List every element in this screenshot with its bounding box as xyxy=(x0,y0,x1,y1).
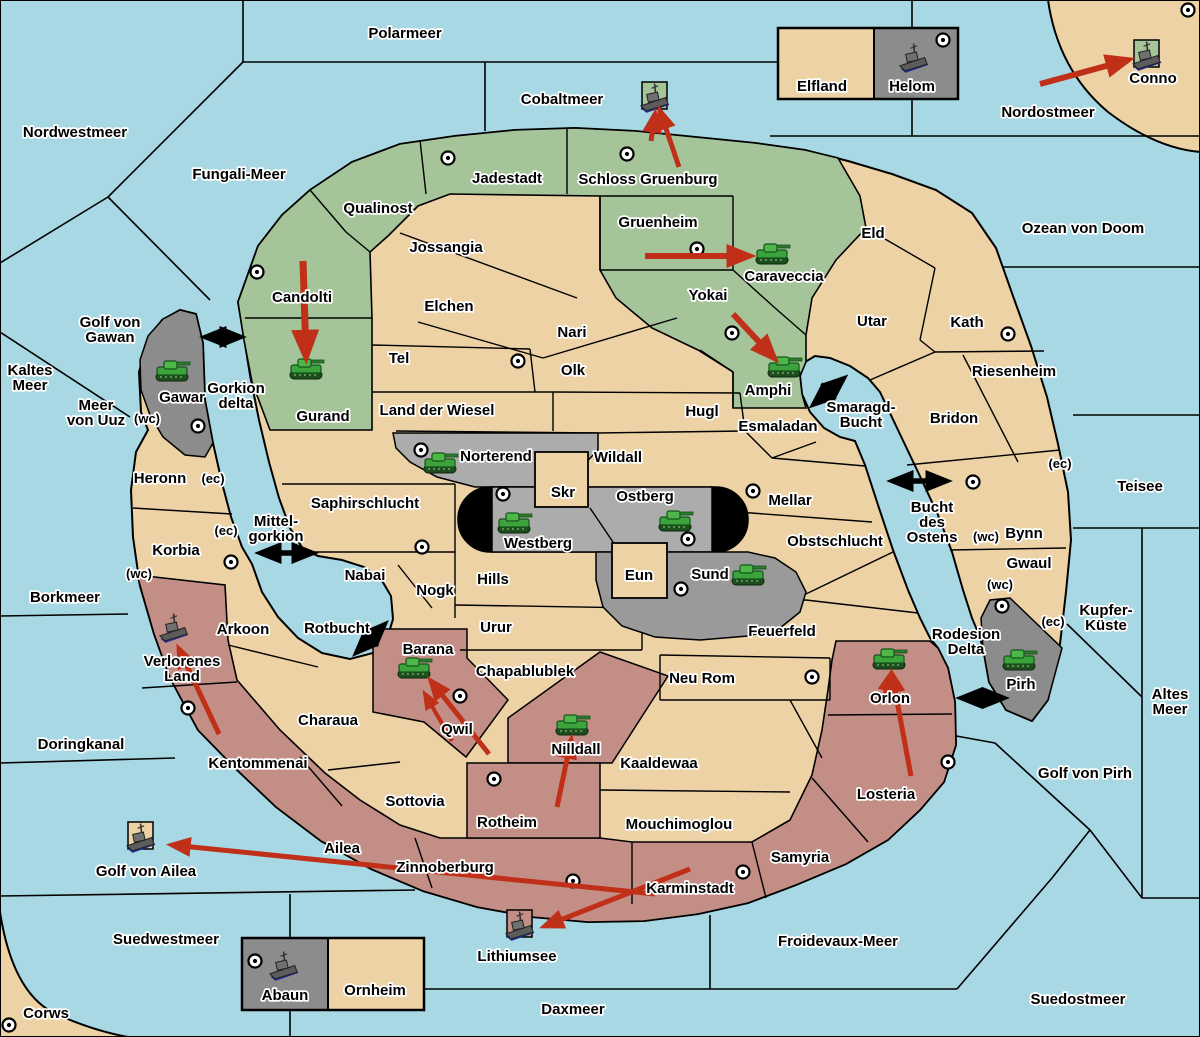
label-ozean-von-doom: Ozean von Doom xyxy=(1022,220,1145,237)
label-rotbucht: Rotbucht xyxy=(304,620,370,637)
label-bynn: Bynn xyxy=(1005,525,1043,542)
label-korbia-ec: (ec) xyxy=(214,523,237,538)
label-utar: Utar xyxy=(857,313,887,330)
label-nordwestmeer: Nordwestmeer xyxy=(23,124,127,141)
label-karminstadt: Karminstadt xyxy=(646,880,734,897)
label-heronn: Heronn xyxy=(134,470,187,487)
label-golf-von-ailea: Golf von Ailea xyxy=(96,863,197,880)
label-nari: Nari xyxy=(557,324,586,341)
label-golf-von-pirh: Golf von Pirh xyxy=(1038,765,1132,782)
label-gwaul-wc: (wc) xyxy=(987,577,1013,592)
label-olk: Olk xyxy=(561,362,586,379)
label-gwaul-ec: (ec) xyxy=(1041,614,1064,629)
supply-center-saphirschlucht xyxy=(416,541,429,554)
supply-center-gawar xyxy=(192,420,205,433)
label-barana: Barana xyxy=(403,641,455,658)
label-helom: Helom xyxy=(889,78,935,95)
label-korbia: Korbia xyxy=(152,542,200,559)
supply-center-bynn xyxy=(967,476,980,489)
supply-center-abaun xyxy=(249,955,262,968)
label-westberg: Westberg xyxy=(504,535,572,552)
label-mittel-gorkion: Mittel-gorkion xyxy=(249,513,304,545)
label-suedwestmeer: Suedwestmeer xyxy=(113,931,219,948)
label-daxmeer: Daxmeer xyxy=(541,1001,605,1018)
label-orlon: Orlon xyxy=(870,690,910,707)
label-teisee: Teisee xyxy=(1117,478,1163,495)
label-heronn-wc: (wc) xyxy=(134,411,160,426)
label-samyria: Samyria xyxy=(771,849,830,866)
supply-center-ostberg xyxy=(682,533,695,546)
supply-center-westberg xyxy=(497,488,510,501)
label-ornheim: Ornheim xyxy=(344,982,406,999)
label-ostberg: Ostberg xyxy=(616,488,674,505)
label-kaltes-meer: KaltesMeer xyxy=(7,362,52,394)
supply-center-sund xyxy=(675,583,688,596)
label-kupfer-kueste: Kupfer-Küste xyxy=(1079,602,1132,634)
label-heronn-ec: (ec) xyxy=(201,471,224,486)
label-bridon: Bridon xyxy=(930,410,978,427)
supply-center-kath xyxy=(1002,328,1015,341)
label-suedostmeer: Suedostmeer xyxy=(1030,991,1125,1008)
label-borkmeer: Borkmeer xyxy=(30,589,100,606)
label-nogk: Nogk xyxy=(416,582,454,599)
label-kaaldewaa: Kaaldewaa xyxy=(620,755,698,772)
label-caraveccia: Caraveccia xyxy=(744,268,824,285)
label-skr: Skr xyxy=(551,484,575,501)
label-abaun: Abaun xyxy=(262,987,309,1004)
supply-center-pirh xyxy=(996,600,1009,613)
supply-center-qwil xyxy=(454,690,467,703)
label-tel: Tel xyxy=(389,350,410,367)
label-kath: Kath xyxy=(950,314,983,331)
supply-center-tel xyxy=(512,355,525,368)
supply-center-candolti xyxy=(251,266,264,279)
label-doringkanal: Doringkanal xyxy=(38,736,125,753)
label-elfland: Elfland xyxy=(797,78,847,95)
label-altes-meer: AltesMeer xyxy=(1152,686,1189,718)
supply-center-korbia xyxy=(225,556,238,569)
label-fungali-meer: Fungali-Meer xyxy=(192,166,286,183)
label-cobaltmeer: Cobaltmeer xyxy=(521,91,604,108)
supply-center-jadestadt xyxy=(442,152,455,165)
map-svg: PolarmeerCobaltmeerNordostmeerNordwestme… xyxy=(0,0,1200,1037)
label-qualinost: Qualinost xyxy=(343,200,412,217)
label-zinnoberburg: Zinnoberburg xyxy=(396,859,494,876)
label-gruenheim: Gruenheim xyxy=(618,214,697,231)
label-charaua: Charaua xyxy=(298,712,359,729)
label-neu-rom: Neu Rom xyxy=(669,670,735,687)
label-hugl: Hugl xyxy=(685,403,718,420)
supply-center-schloss-gruenburg xyxy=(621,148,634,161)
label-land-der-wiesel: Land der Wiesel xyxy=(380,402,495,419)
inset-cell-ornheim xyxy=(328,938,424,1010)
label-kentommenai: Kentommenai xyxy=(208,755,307,772)
label-urur: Urur xyxy=(480,619,512,636)
label-riesenheim: Riesenheim xyxy=(972,363,1056,380)
label-sund: Sund xyxy=(691,566,729,583)
label-saphirschlucht: Saphirschlucht xyxy=(311,495,419,512)
label-elchen: Elchen xyxy=(424,298,473,315)
label-froidevaux-meer: Froidevaux-Meer xyxy=(778,933,898,950)
label-rotheim: Rotheim xyxy=(477,814,537,831)
label-gwaul: Gwaul xyxy=(1006,555,1051,572)
label-eun: Eun xyxy=(625,567,653,584)
label-candolti: Candolti xyxy=(272,289,332,306)
label-wildall: Wildall xyxy=(594,449,642,466)
label-jadestadt: Jadestadt xyxy=(472,170,542,187)
supply-center-helom xyxy=(937,34,950,47)
label-pirh: Pirh xyxy=(1006,676,1035,693)
game-map: PolarmeerCobaltmeerNordostmeerNordwestme… xyxy=(0,0,1200,1037)
label-nabai: Nabai xyxy=(345,567,386,584)
label-polarmeer: Polarmeer xyxy=(368,25,442,42)
label-golf-von-gawan: Golf vonGawan xyxy=(80,314,141,346)
label-esmaladan: Esmaladan xyxy=(738,418,817,435)
supply-center-kentommenai xyxy=(182,702,195,715)
supply-center-neu-rom xyxy=(806,671,819,684)
label-sottovia: Sottovia xyxy=(385,793,445,810)
label-conno: Conno xyxy=(1129,70,1176,87)
label-mellar: Mellar xyxy=(768,492,812,509)
supply-center-conno xyxy=(1182,4,1195,17)
label-losteria: Losteria xyxy=(857,786,916,803)
label-nordostmeer: Nordostmeer xyxy=(1001,104,1095,121)
supply-center-norterend xyxy=(415,444,428,457)
label-norterend: Norterend xyxy=(460,448,532,465)
supply-center-rotheim xyxy=(488,773,501,786)
label-yokai: Yokai xyxy=(689,287,728,304)
label-hills: Hills xyxy=(477,571,509,588)
label-bynn-wc: (wc) xyxy=(973,529,999,544)
label-bynn-ec: (ec) xyxy=(1048,456,1071,471)
label-amphi: Amphi xyxy=(745,382,792,399)
label-jossangia: Jossangia xyxy=(409,239,483,256)
label-qwil: Qwil xyxy=(441,721,473,738)
supply-center-losteria xyxy=(942,756,955,769)
supply-center-yokai xyxy=(726,327,739,340)
move-arrow-candolti-to-gurand xyxy=(303,261,306,356)
supply-center-mellar xyxy=(747,485,760,498)
label-gawar: Gawar xyxy=(159,389,205,406)
label-feuerfeld: Feuerfeld xyxy=(748,623,816,640)
label-obstschlucht: Obstschlucht xyxy=(787,533,883,550)
label-chapablublek: Chapablublek xyxy=(476,663,575,680)
label-eld: Eld xyxy=(861,225,884,242)
label-corws: Corws xyxy=(23,1005,69,1022)
label-arkoon: Arkoon xyxy=(217,621,270,638)
label-schloss-gruenburg: Schloss Gruenburg xyxy=(578,171,717,188)
supply-center-karminstadt xyxy=(737,866,750,879)
label-lithiumsee: Lithiumsee xyxy=(477,948,556,965)
label-ailea: Ailea xyxy=(324,840,361,857)
land-border-34 xyxy=(935,351,1044,352)
label-nilldall: Nilldall xyxy=(551,741,600,758)
pink-border-6 xyxy=(828,714,952,715)
label-mouchimoglou: Mouchimoglou xyxy=(626,816,733,833)
label-gurand: Gurand xyxy=(296,408,349,425)
label-korbia-wc: (wc) xyxy=(126,566,152,581)
supply-center-corws xyxy=(3,1019,16,1032)
